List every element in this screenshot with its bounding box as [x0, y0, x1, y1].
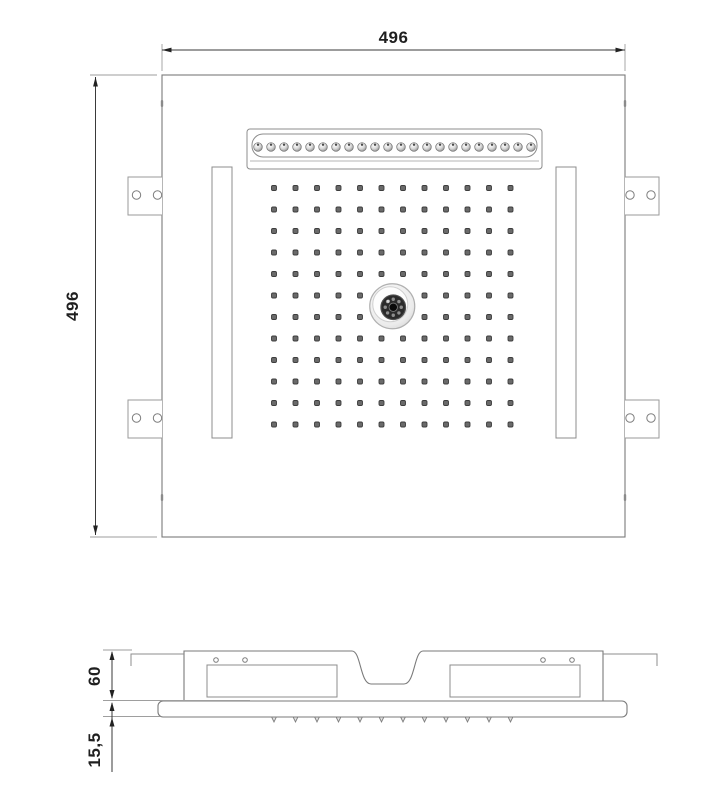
housing-hole [541, 658, 546, 663]
spray-nozzle-dot [358, 293, 363, 298]
nozzle-tip [413, 144, 415, 146]
spray-nozzle-dot [508, 186, 513, 191]
spray-nozzle-dot [293, 272, 298, 277]
spray-nozzle-dot [487, 315, 492, 320]
tab-hole [132, 414, 140, 422]
side-view: 60 15,5 [85, 650, 657, 772]
spray-nozzle-dot [272, 250, 277, 255]
spray-nozzle-dot [401, 422, 406, 427]
spray-nozzle-dot [315, 336, 320, 341]
spray-nozzle-dot [315, 229, 320, 234]
side-nozzle-tick [358, 717, 363, 722]
spray-nozzle-dot [358, 422, 363, 427]
spray-nozzle-dot [293, 401, 298, 406]
spray-nozzle-dot [315, 250, 320, 255]
spray-nozzle-dot [358, 401, 363, 406]
nozzle-tip [400, 144, 402, 146]
spray-nozzle-dot [508, 315, 513, 320]
spray-nozzle-dot [444, 186, 449, 191]
nozzle-tip [452, 144, 454, 146]
spray-nozzle-dot [487, 422, 492, 427]
spray-nozzle-dot [487, 379, 492, 384]
nozzle-tip [426, 144, 428, 146]
spray-nozzle-dot [422, 272, 427, 277]
dim-arrow-left [162, 48, 172, 53]
dimension-width: 496 [162, 28, 625, 71]
spray-nozzle-dot [508, 336, 513, 341]
spray-nozzle-dot [379, 336, 384, 341]
spray-nozzle-dot [315, 293, 320, 298]
spray-nozzle-dot [465, 379, 470, 384]
spray-nozzle-dot [358, 358, 363, 363]
spray-nozzle-dot [336, 272, 341, 277]
spray-nozzle-dot [422, 186, 427, 191]
spray-nozzle-dot [379, 358, 384, 363]
nozzle-tip [257, 144, 259, 146]
spray-nozzle-dot [293, 229, 298, 234]
fixture-highlight [387, 300, 390, 303]
spray-nozzle-dot [444, 379, 449, 384]
spray-nozzle-dot [465, 401, 470, 406]
dimension-plate-depth: 15,5 [85, 702, 160, 772]
nozzle-tip [517, 144, 519, 146]
edge-mark [161, 494, 163, 501]
tab-hole [626, 414, 634, 422]
spray-nozzle-dot [465, 250, 470, 255]
top-view: 496 496 [63, 28, 659, 537]
tab-hole [626, 191, 634, 199]
edge-mark [161, 100, 163, 107]
dim-arrow-top [93, 77, 98, 87]
spray-nozzle-dot [465, 186, 470, 191]
spray-nozzle-dot [422, 315, 427, 320]
spray-nozzle-dot [336, 422, 341, 427]
spray-nozzle-dot [293, 250, 298, 255]
side-nozzle-ticks [272, 717, 513, 722]
spray-nozzle-dot [508, 379, 513, 384]
spray-nozzle-dot [272, 229, 277, 234]
fixture-ring-dot [397, 300, 400, 303]
spray-nozzle-dot [487, 293, 492, 298]
spray-nozzle-dot [401, 229, 406, 234]
spray-nozzle-dot [293, 207, 298, 212]
spray-nozzle-dot [508, 250, 513, 255]
spray-nozzle-dot [444, 293, 449, 298]
spray-nozzle-dot [358, 186, 363, 191]
dim-arrow-bottom [93, 526, 98, 536]
spray-nozzle-dot [444, 315, 449, 320]
spray-nozzle-dot [508, 272, 513, 277]
spray-nozzle-dot [401, 250, 406, 255]
edge-mark [624, 100, 626, 107]
spray-nozzle-dot [422, 422, 427, 427]
fixture-ring-dot [392, 314, 395, 317]
spray-nozzle-dot [444, 422, 449, 427]
spray-nozzle-dot [293, 293, 298, 298]
spray-nozzle-dot [293, 186, 298, 191]
spray-nozzle-dot [508, 422, 513, 427]
nozzle-tip [478, 144, 480, 146]
spray-nozzle-dot [315, 272, 320, 277]
spray-nozzle-dot [487, 207, 492, 212]
spray-nozzle-dot [508, 229, 513, 234]
dimension-height: 496 [63, 75, 157, 537]
shower-panel-drawing: 496 496 [0, 0, 720, 800]
spray-nozzle-dot [272, 186, 277, 191]
dim-arrow-right [616, 48, 626, 53]
spray-nozzle-dot [379, 272, 384, 277]
spray-nozzle-dot [487, 401, 492, 406]
spray-nozzle-dot [315, 315, 320, 320]
spray-nozzle-dot [487, 229, 492, 234]
spray-nozzle-dot [444, 229, 449, 234]
dim-arrow-upper [110, 702, 115, 711]
fixture-ring-dot [386, 311, 389, 314]
spray-nozzle-dot [379, 186, 384, 191]
nozzle-tip [296, 144, 298, 146]
side-nozzle-tick [444, 717, 449, 722]
side-nozzle-tick [422, 717, 427, 722]
spray-nozzle-dot [444, 336, 449, 341]
nozzle-tip [361, 144, 363, 146]
hook-right [603, 654, 657, 666]
spray-nozzle-dot [358, 315, 363, 320]
nozzle-tip [322, 144, 324, 146]
dim-arrow-top [110, 651, 115, 660]
spray-nozzle-dot [315, 207, 320, 212]
spray-nozzle-dot [422, 379, 427, 384]
spray-nozzle-dot [315, 422, 320, 427]
spray-nozzle-dot [401, 207, 406, 212]
housing-hole [214, 658, 219, 663]
spray-nozzle-dot [379, 250, 384, 255]
spray-nozzle-dot [272, 207, 277, 212]
nozzle-tip [491, 144, 493, 146]
spray-nozzle-dot [293, 358, 298, 363]
fixture-ring-dot [384, 306, 387, 309]
nozzle-tip [530, 144, 532, 146]
spray-nozzle-dot [315, 401, 320, 406]
spray-nozzle-dot [336, 207, 341, 212]
spray-nozzle-dot [358, 250, 363, 255]
spray-nozzle-dot [487, 336, 492, 341]
fixture-center-dot [389, 303, 397, 311]
spray-nozzle-dot [401, 186, 406, 191]
spray-nozzle-dot [379, 401, 384, 406]
side-nozzle-tick [336, 717, 341, 722]
housing-hole [570, 658, 575, 663]
spray-nozzle-dot [315, 186, 320, 191]
spray-nozzle-dot [422, 207, 427, 212]
spray-nozzle-dot [293, 422, 298, 427]
spray-nozzle-dot [272, 401, 277, 406]
spray-nozzle-dot [358, 229, 363, 234]
fixture-ring-dot [392, 298, 395, 301]
nozzle-tip [465, 144, 467, 146]
spray-nozzle-dot [315, 379, 320, 384]
nozzle-tip [387, 144, 389, 146]
spray-nozzle-dot [272, 293, 277, 298]
spray-nozzle-dot [336, 336, 341, 341]
spray-nozzle-dot [465, 315, 470, 320]
side-nozzle-tick [508, 717, 513, 722]
spray-nozzle-dot [358, 336, 363, 341]
spray-nozzle-dot [444, 250, 449, 255]
nozzle-tip [335, 144, 337, 146]
spray-nozzle-dot [272, 358, 277, 363]
tab-hole [647, 191, 655, 199]
nozzle-tip [270, 144, 272, 146]
spray-nozzle-dot [487, 186, 492, 191]
spray-nozzle-dot [487, 250, 492, 255]
mounting-tab-bottom-left [128, 400, 162, 438]
spray-nozzle-dot [465, 272, 470, 277]
spray-nozzle-dot [336, 250, 341, 255]
spray-nozzle-dot [508, 401, 513, 406]
spray-nozzle-dot [293, 336, 298, 341]
fixture-ring-dot [400, 306, 403, 309]
spray-nozzle-dot [401, 272, 406, 277]
spray-nozzle-dot [422, 229, 427, 234]
spray-nozzle-dot [422, 293, 427, 298]
spray-nozzle-dot [508, 293, 513, 298]
spray-nozzle-dot [379, 229, 384, 234]
spray-nozzle-dot [465, 293, 470, 298]
face-plate [158, 701, 627, 717]
housing-hole [243, 658, 248, 663]
spray-nozzle-dot [336, 358, 341, 363]
spray-nozzle-dot [272, 379, 277, 384]
nozzle-tip [439, 144, 441, 146]
spray-nozzle-dot [358, 379, 363, 384]
spray-nozzle-dot [465, 207, 470, 212]
mounting-tab-top-right [625, 177, 659, 215]
spray-nozzle-dot [272, 272, 277, 277]
spray-nozzle-dot [444, 272, 449, 277]
fixture-ring-dot [397, 311, 400, 314]
spray-nozzle-dot [487, 272, 492, 277]
spray-nozzle-dot [293, 315, 298, 320]
mounting-tab-top-left [128, 177, 162, 215]
nozzle-tip [283, 144, 285, 146]
nozzle-tip [504, 144, 506, 146]
nozzle-tip [348, 144, 350, 146]
spray-nozzle-dot [444, 207, 449, 212]
nozzle-tip [374, 144, 376, 146]
side-nozzle-tick [465, 717, 470, 722]
tab-hole [153, 191, 161, 199]
spray-nozzle-dot [401, 401, 406, 406]
spray-nozzle-dot [358, 272, 363, 277]
spray-nozzle-dot [379, 207, 384, 212]
spray-nozzle-dot [401, 358, 406, 363]
spray-nozzle-dot [465, 229, 470, 234]
height-dimension-label: 496 [63, 291, 82, 321]
spray-nozzle-dot [336, 379, 341, 384]
nozzle-tip [309, 144, 311, 146]
spray-nozzle-dot [401, 379, 406, 384]
side-nozzle-tick [487, 717, 492, 722]
side-nozzle-tick [379, 717, 384, 722]
spray-nozzle-dot [508, 358, 513, 363]
width-dimension-label: 496 [379, 28, 409, 47]
spray-nozzle-dot [422, 250, 427, 255]
side-nozzle-tick [315, 717, 320, 722]
side-nozzle-tick [293, 717, 298, 722]
dim-arrow-lower [110, 718, 115, 727]
hook-left [131, 654, 184, 666]
dim-arrow-bottom [110, 690, 115, 699]
spray-nozzle-dot [379, 379, 384, 384]
spray-nozzle-dot [336, 186, 341, 191]
spray-nozzle-dot [401, 336, 406, 341]
tab-hole [647, 414, 655, 422]
plate-depth-label: 15,5 [85, 732, 104, 767]
spray-nozzle-dot [272, 315, 277, 320]
spray-nozzle-dot [444, 401, 449, 406]
tab-hole [153, 414, 161, 422]
center-fixture [370, 284, 415, 329]
tab-hole [132, 191, 140, 199]
spray-nozzle-dot [315, 358, 320, 363]
spray-nozzle-dot [422, 401, 427, 406]
spray-nozzle-dot [336, 293, 341, 298]
spray-nozzle-dot [422, 358, 427, 363]
housing-height-label: 60 [85, 666, 104, 686]
spray-nozzle-dot [293, 379, 298, 384]
edge-mark [624, 494, 626, 501]
spray-nozzle-dot [336, 401, 341, 406]
spray-nozzle-dot [487, 358, 492, 363]
side-nozzle-tick [401, 717, 406, 722]
technical-drawing-canvas: 496 496 [0, 0, 720, 800]
spray-nozzle-dot [508, 207, 513, 212]
spray-nozzle-dot [444, 358, 449, 363]
side-nozzle-tick [272, 717, 277, 722]
spray-nozzle-dot [336, 315, 341, 320]
spray-nozzle-dot [336, 229, 341, 234]
spray-nozzle-dot [358, 207, 363, 212]
spray-nozzle-dot [465, 358, 470, 363]
spray-nozzle-dot [379, 422, 384, 427]
mounting-tab-bottom-right [625, 400, 659, 438]
spray-nozzle-dot [465, 422, 470, 427]
spray-nozzle-dot [272, 422, 277, 427]
spray-nozzle-dot [422, 336, 427, 341]
spray-nozzle-dot [272, 336, 277, 341]
spray-nozzle-dot [465, 336, 470, 341]
